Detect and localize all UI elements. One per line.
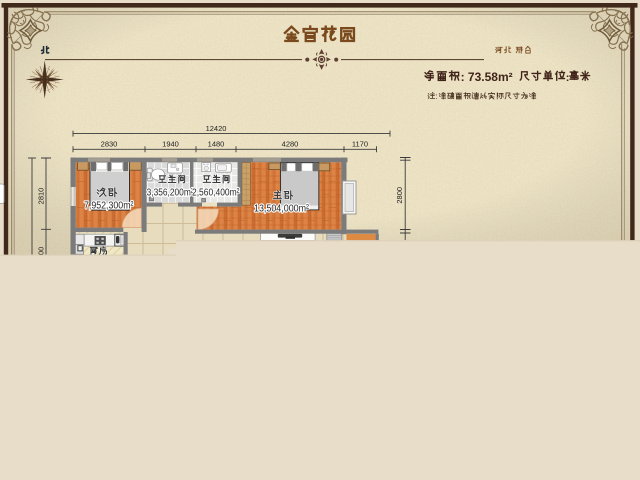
svg-text:2,560,400m²: 2,560,400m²	[192, 188, 240, 199]
svg-text:13,504,000m²: 13,504,000m²	[254, 203, 310, 214]
svg-text:1940: 1940	[162, 140, 179, 149]
svg-text:: 73.58m²: : 73.58m²	[461, 70, 513, 84]
svg-text:4280: 4280	[282, 140, 299, 149]
svg-text:2830: 2830	[101, 140, 118, 149]
svg-text:7,952,300m²: 7,952,300m²	[84, 200, 134, 211]
svg-text:2810: 2810	[37, 188, 46, 205]
svg-text::: :	[566, 72, 570, 84]
svg-text:2800: 2800	[395, 187, 404, 204]
svg-text:3,356,200m²: 3,356,200m²	[147, 188, 195, 199]
svg-text:1170: 1170	[352, 140, 368, 149]
svg-text:12420: 12420	[206, 124, 227, 133]
svg-text:1480: 1480	[208, 140, 225, 149]
svg-text::: :	[435, 92, 437, 101]
